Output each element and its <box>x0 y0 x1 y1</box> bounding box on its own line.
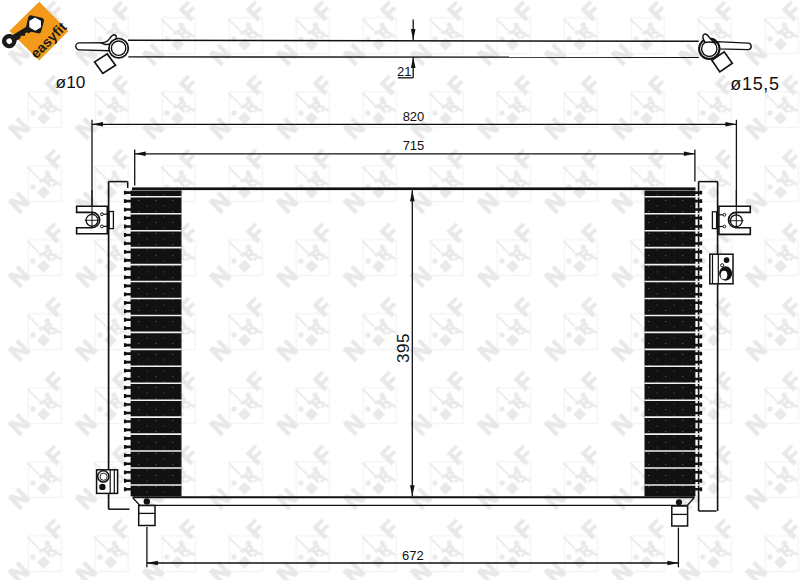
svg-text:820: 820 <box>403 109 425 124</box>
svg-text:672: 672 <box>402 548 424 563</box>
svg-text:ø10: ø10 <box>56 72 86 92</box>
svg-text:715: 715 <box>403 138 425 153</box>
svg-text:395: 395 <box>394 333 413 363</box>
svg-text:21: 21 <box>397 64 411 79</box>
svg-text:ø15,5: ø15,5 <box>730 74 780 94</box>
